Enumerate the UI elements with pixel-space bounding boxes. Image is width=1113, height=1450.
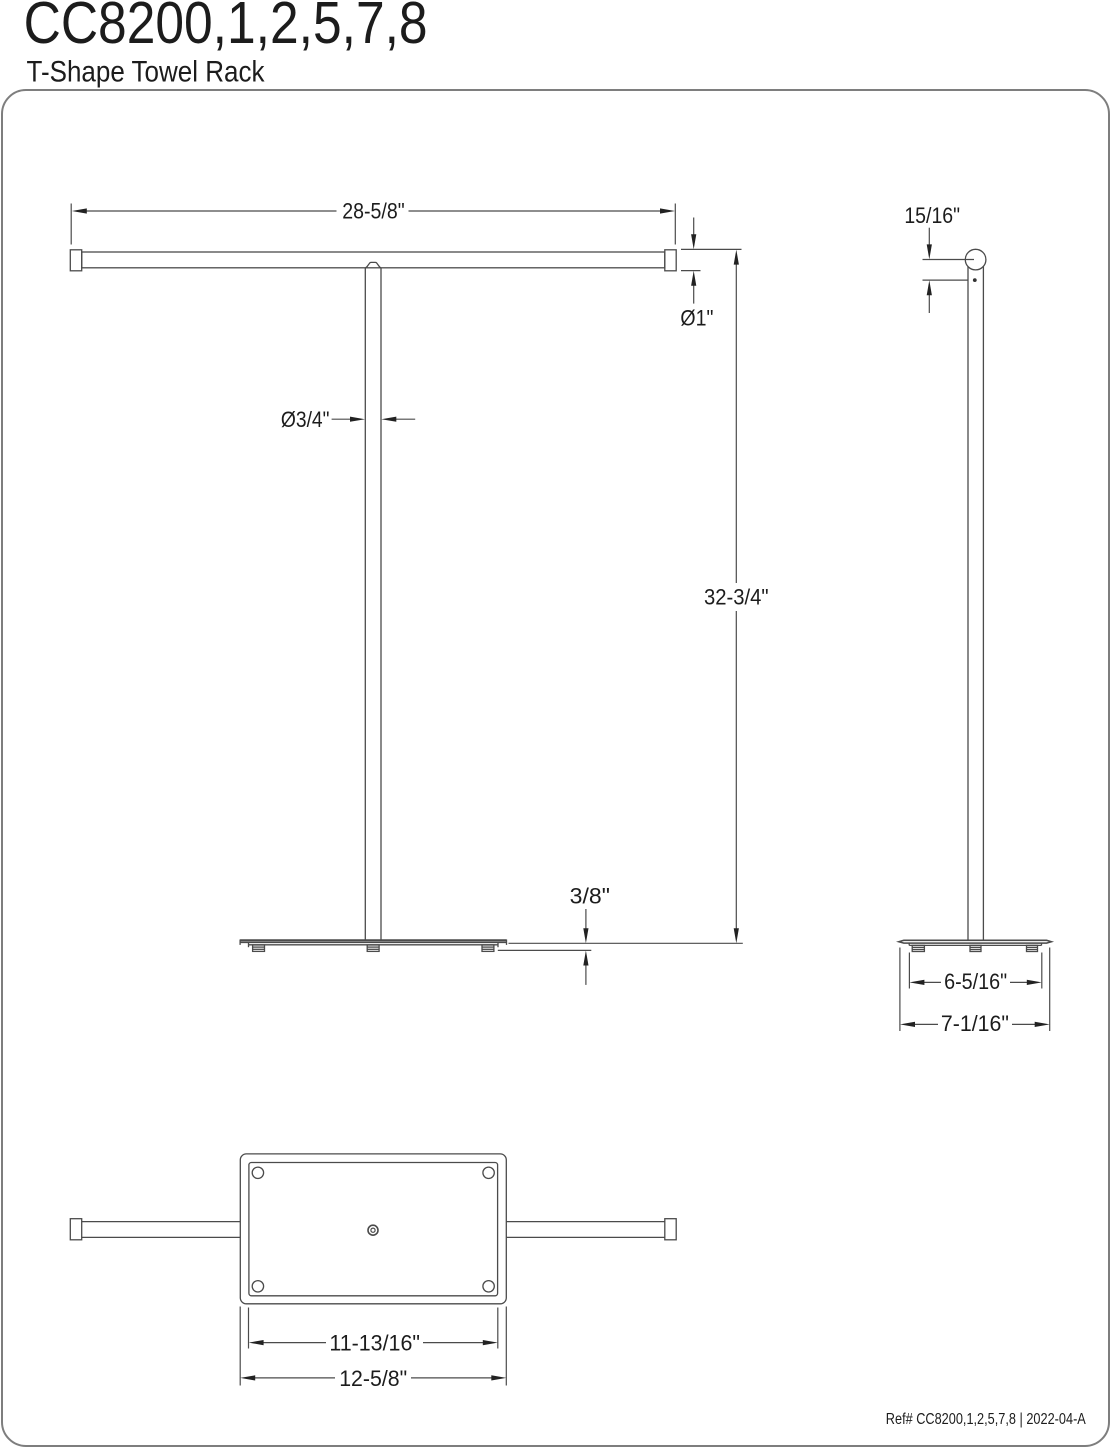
svg-text:28-5/8": 28-5/8"	[342, 198, 404, 223]
svg-text:6-5/16": 6-5/16"	[944, 969, 1007, 994]
svg-text:Ref# CC8200,1,2,5,7,8 | 2022-0: Ref# CC8200,1,2,5,7,8 | 2022-04-A	[886, 1411, 1086, 1428]
svg-text:12-5/8": 12-5/8"	[339, 1366, 407, 1391]
svg-text:3/8": 3/8"	[570, 884, 610, 909]
svg-text:11-13/16": 11-13/16"	[329, 1331, 420, 1356]
svg-text:Ø1": Ø1"	[680, 306, 713, 331]
svg-text:Ø3/4": Ø3/4"	[281, 407, 330, 432]
svg-text:T-Shape Towel Rack: T-Shape Towel Rack	[27, 56, 265, 89]
svg-text:32-3/4": 32-3/4"	[704, 584, 769, 609]
svg-text:CC8200,1,2,5,7,8: CC8200,1,2,5,7,8	[24, 0, 428, 56]
svg-text:15/16": 15/16"	[904, 203, 960, 228]
svg-text:7-1/16": 7-1/16"	[941, 1011, 1009, 1036]
